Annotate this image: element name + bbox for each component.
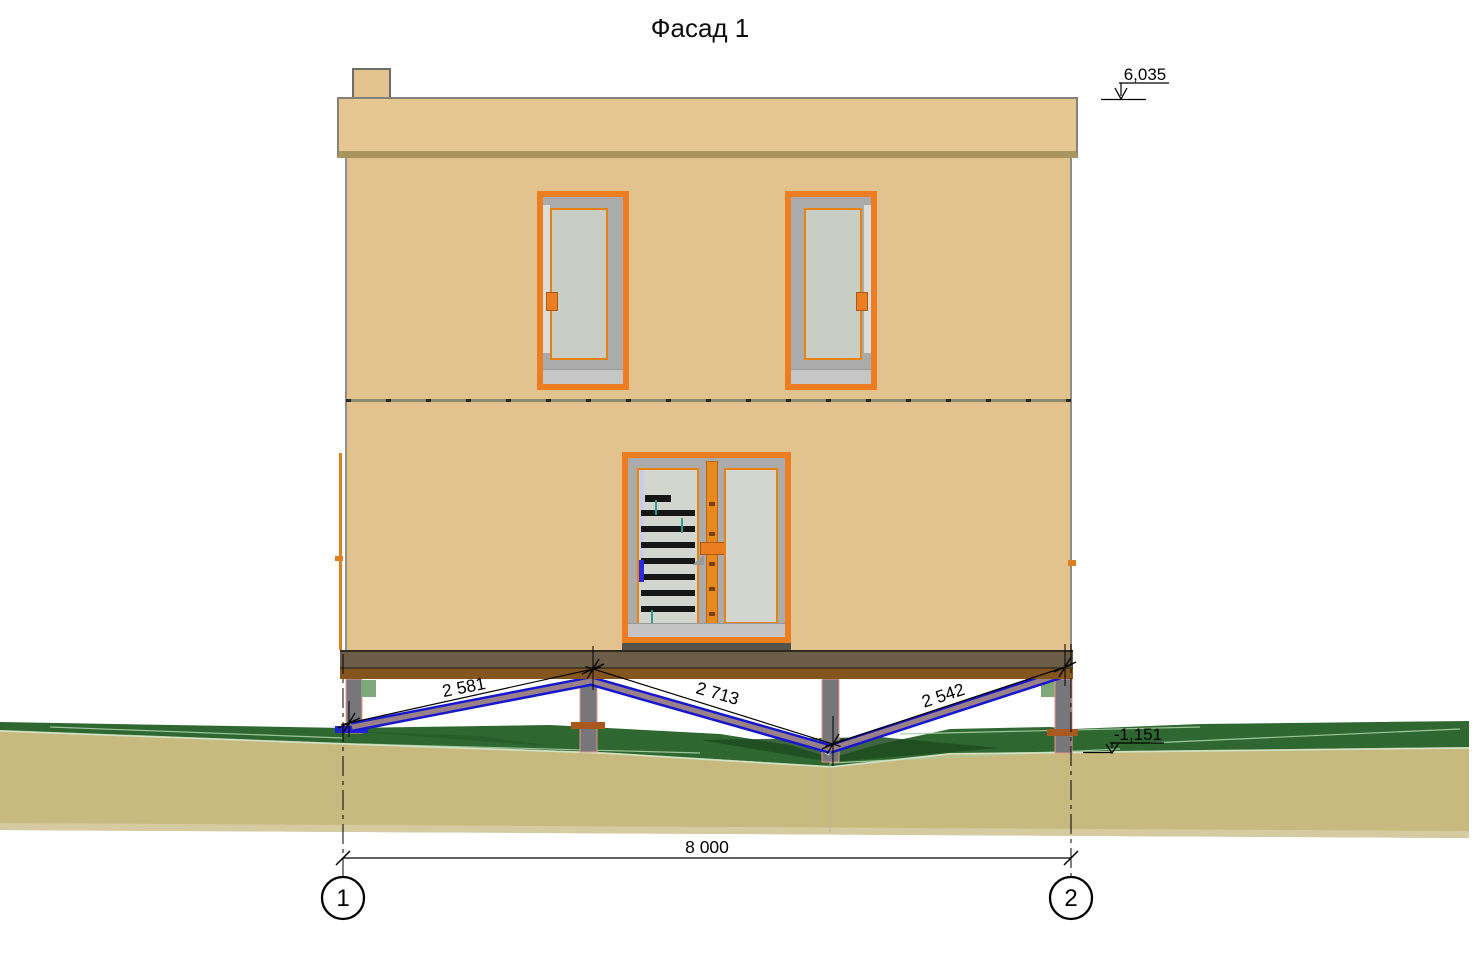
dim-text-brace-middle: 2 713 [694,678,742,709]
brace-dimension-lines [341,644,1072,766]
elevation-mark-ground [1083,743,1164,753]
dimension-tick-marks [338,657,1076,754]
dim-text-brace-right: 2 542 [919,679,967,712]
elevation-text-roof: 6,035 [1124,65,1167,84]
facade-drawing-sheet: Фасад 1 [0,0,1484,954]
axis-label-2: 2 [1064,885,1077,912]
axis-label-1: 1 [336,885,349,912]
elevation-text-ground: -1,151 [1114,725,1162,744]
elevation-mark-roof [1101,83,1169,100]
dim-text-brace-left: 2 581 [440,673,487,701]
annotation-layer: 2 581 2 713 2 542 8 000 1 2 6,035 [0,0,1484,954]
dim-text-overall: 8 000 [685,837,729,857]
